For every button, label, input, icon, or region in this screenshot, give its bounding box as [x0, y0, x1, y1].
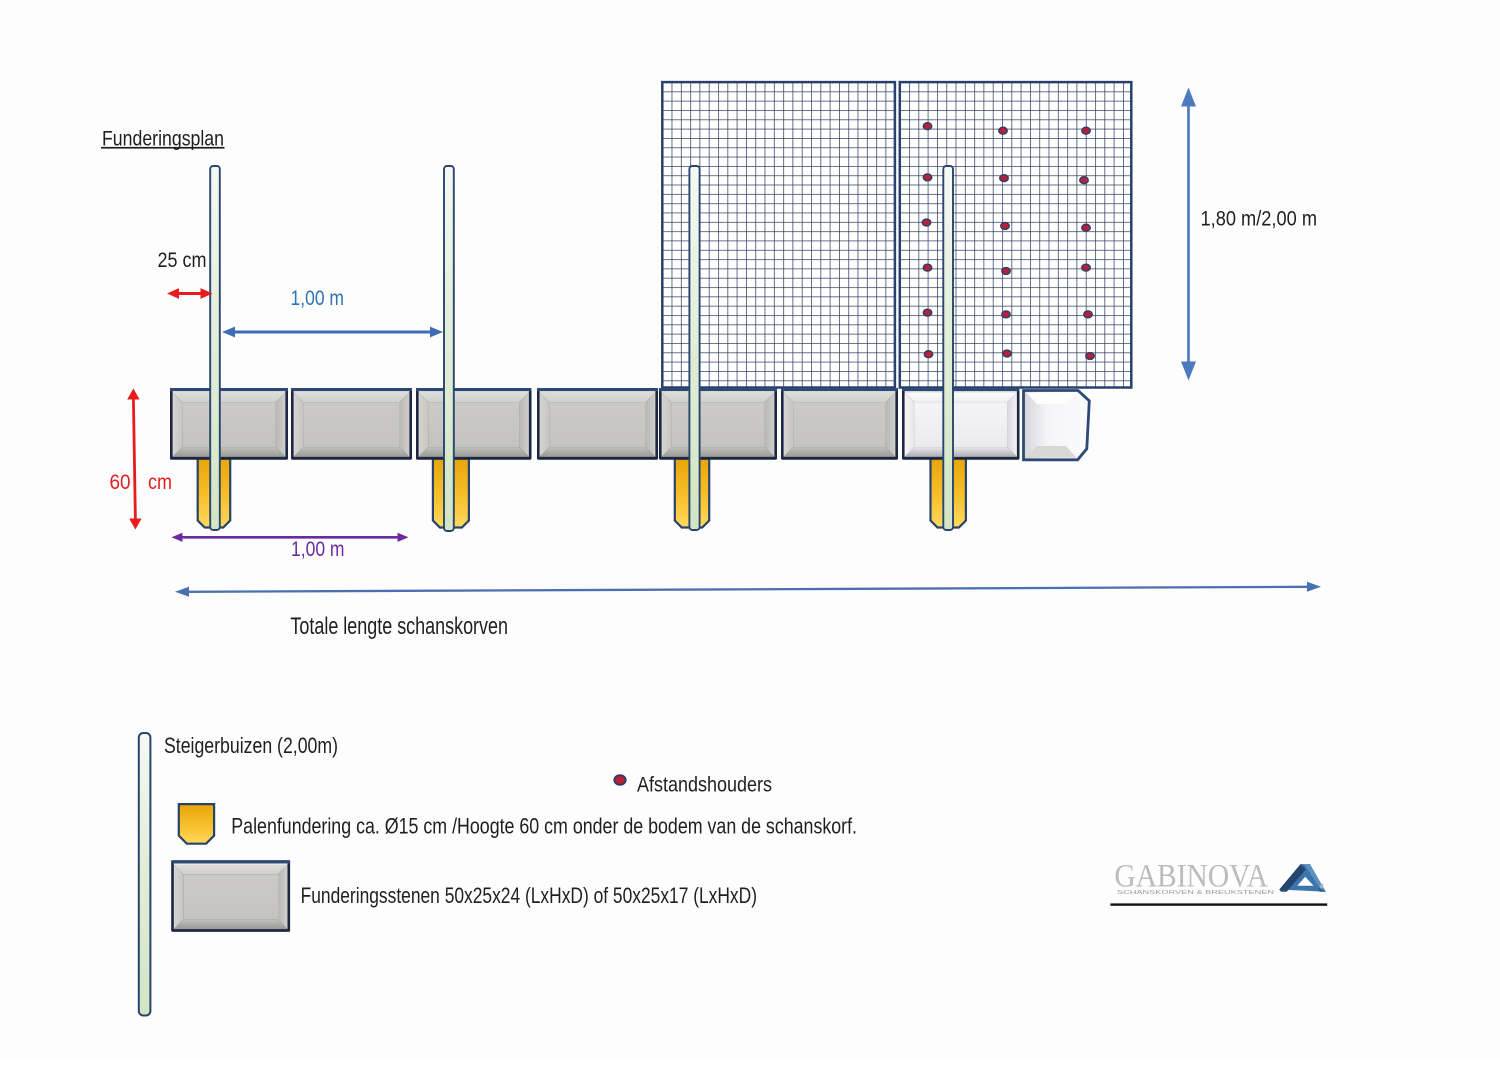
- svg-text:Afstandshouders: Afstandshouders: [637, 774, 772, 797]
- svg-text:1,00 m: 1,00 m: [291, 286, 345, 310]
- svg-text:Steigerbuizen (2,00m): Steigerbuizen (2,00m): [164, 733, 338, 758]
- svg-text:1,80 m/2,00 m: 1,80 m/2,00 m: [1201, 208, 1318, 231]
- svg-text:SCHANSKORVEN & BREUKSTENEN: SCHANSKORVEN & BREUKSTENEN: [1117, 890, 1274, 896]
- svg-text:Totale lengte schanskorven: Totale lengte schanskorven: [290, 613, 508, 640]
- svg-text:25 cm: 25 cm: [158, 248, 207, 272]
- svg-text:60: 60: [110, 470, 131, 494]
- svg-text:Palenfundering ca. Ø15 cm /Hoo: Palenfundering ca. Ø15 cm /Hoogte 60 cm …: [231, 814, 857, 839]
- svg-text:1,00 m: 1,00 m: [291, 537, 345, 561]
- svg-text:cm: cm: [148, 470, 172, 494]
- svg-text:Funderingsstenen 50x25x24 (LxH: Funderingsstenen 50x25x24 (LxHxD) of 50x…: [301, 883, 757, 908]
